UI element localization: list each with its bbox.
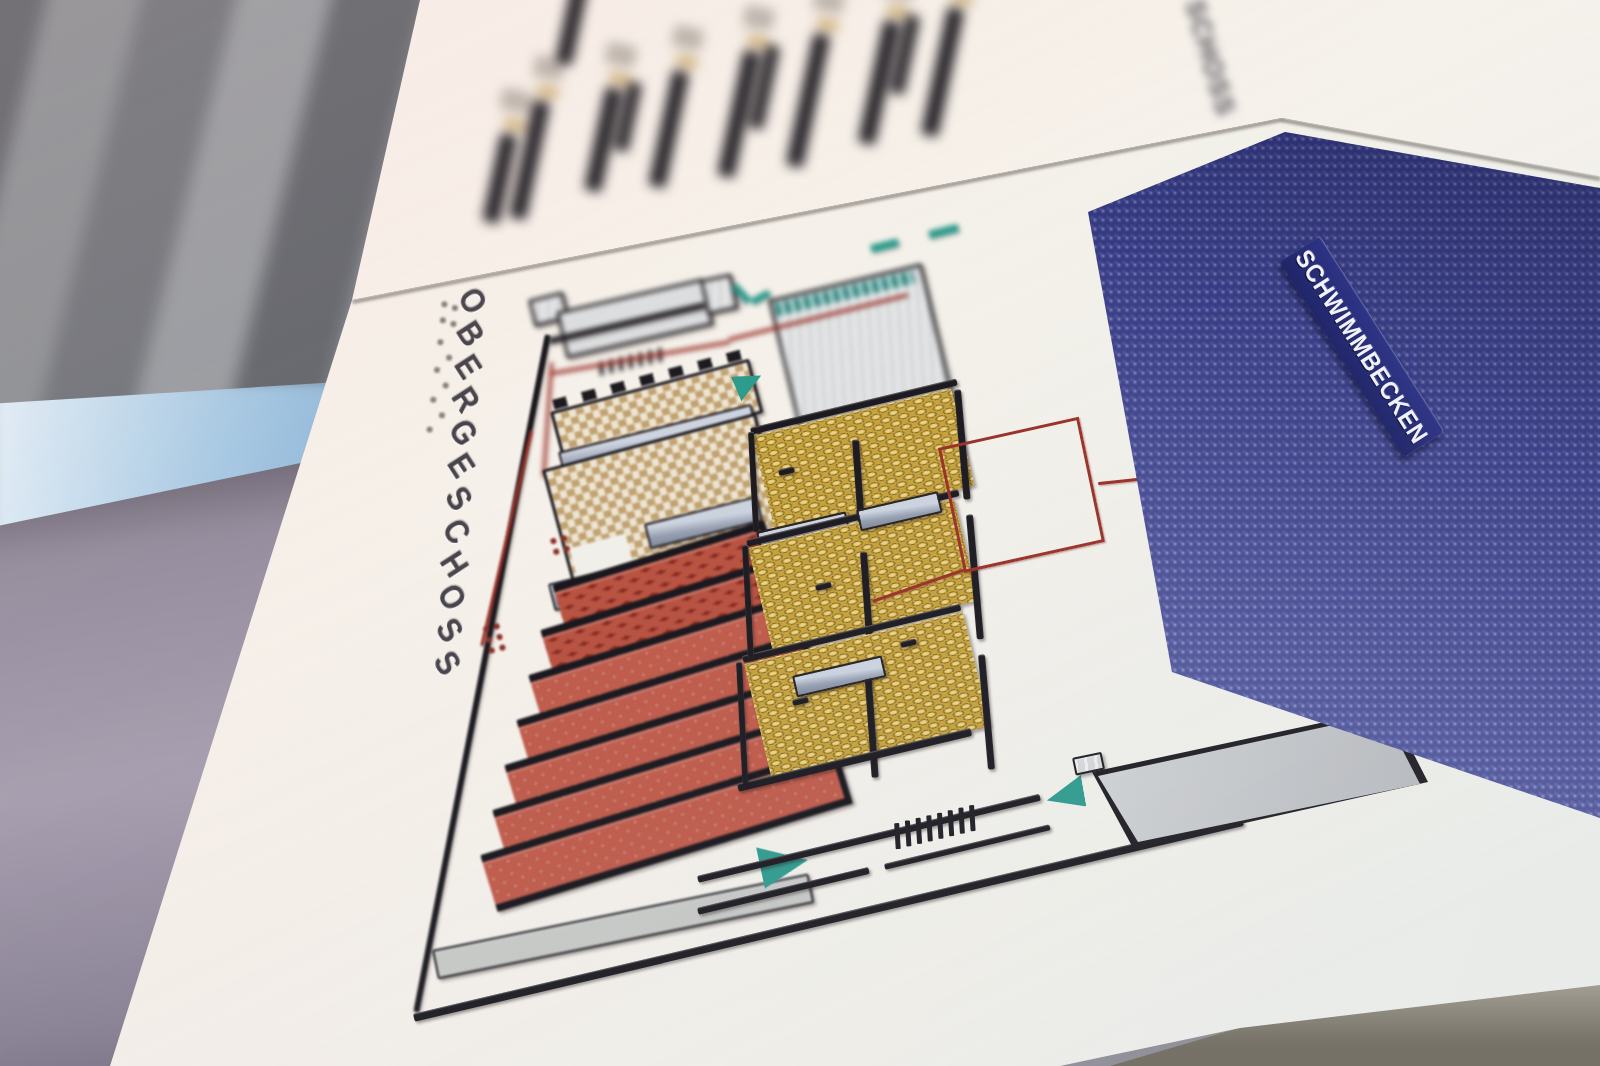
door-marker-teal: [870, 238, 899, 253]
room-gray-tab: [700, 273, 739, 315]
guide-line: [1098, 478, 1138, 485]
direction-triangle-icon: [1044, 775, 1087, 813]
door-marker-teal: [928, 224, 959, 239]
photo-scene: SCHOSS OBERGESCHOSS: [0, 0, 1600, 1066]
stairs-icon: [892, 805, 978, 849]
guide-line: [480, 430, 533, 646]
adjacent-panel-title-fragment: SCHOSS: [1178, 0, 1241, 120]
